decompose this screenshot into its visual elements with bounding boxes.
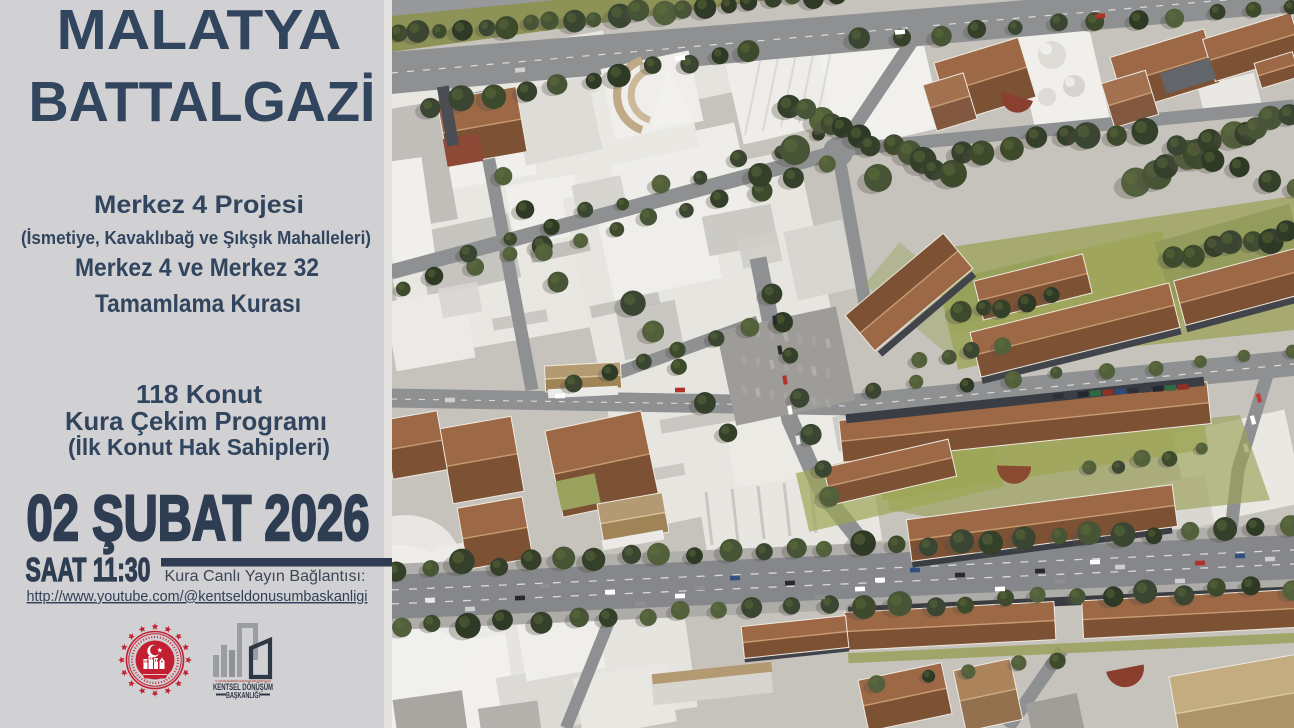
svg-text:(İsmetiye, Kavaklıbağ ve Şıkşı: (İsmetiye, Kavaklıbağ ve Şıkşık Mahallel… xyxy=(21,227,371,248)
svg-text:http://www.youtube.com/@kentse: http://www.youtube.com/@kentseldonusumba… xyxy=(27,589,368,605)
svg-text:Kura Canlı Yayın Bağlantısı:: Kura Canlı Yayın Bağlantısı: xyxy=(165,568,366,585)
svg-text:SAAT 11:30: SAAT 11:30 xyxy=(26,551,151,588)
svg-text:Merkez 4 ve Merkez 32: Merkez 4 ve Merkez 32 xyxy=(75,254,319,282)
svg-text:BAŞKANLIĞI: BAŞKANLIĞI xyxy=(226,689,260,700)
svg-text:Tamamlama Kurası: Tamamlama Kurası xyxy=(95,290,301,318)
svg-text:118 Konut: 118 Konut xyxy=(136,379,262,409)
svg-text:Merkez 4 Projesi: Merkez 4 Projesi xyxy=(94,191,304,219)
svg-text:MALATYA: MALATYA xyxy=(57,0,342,62)
svg-text:(İlk Konut Hak Sahipleri): (İlk Konut Hak Sahipleri) xyxy=(68,434,330,460)
svg-text:BATTALGAZİ: BATTALGAZİ xyxy=(29,70,376,134)
svg-text:Kura Çekim Programı: Kura Çekim Programı xyxy=(65,406,327,436)
svg-text:02 ŞUBAT 2026: 02 ŞUBAT 2026 xyxy=(27,482,370,554)
